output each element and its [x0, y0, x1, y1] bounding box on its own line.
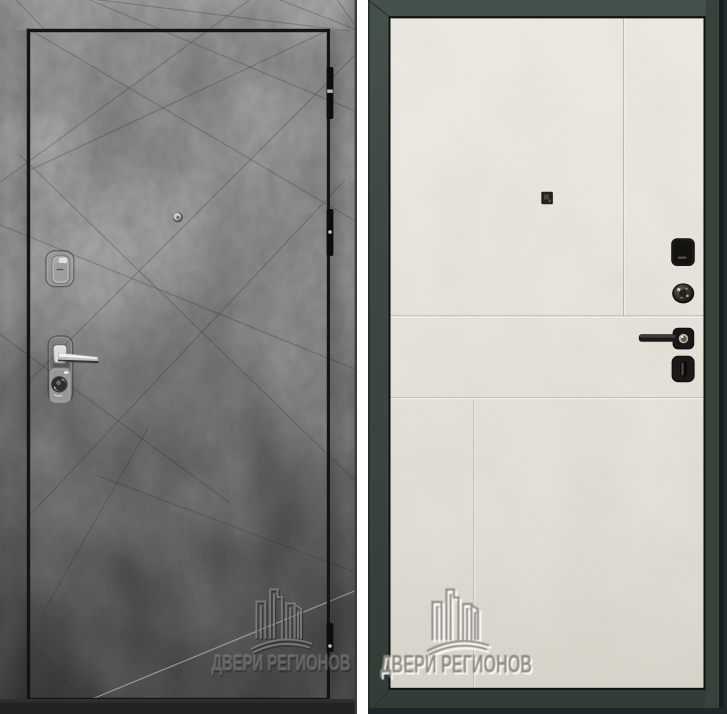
- svg-text:ДВЕРИ РЕГИОНОВ: ДВЕРИ РЕГИОНОВ: [212, 650, 351, 675]
- svg-text:ДВЕРИ РЕГИОНОВ: ДВЕРИ РЕГИОНОВ: [380, 651, 532, 679]
